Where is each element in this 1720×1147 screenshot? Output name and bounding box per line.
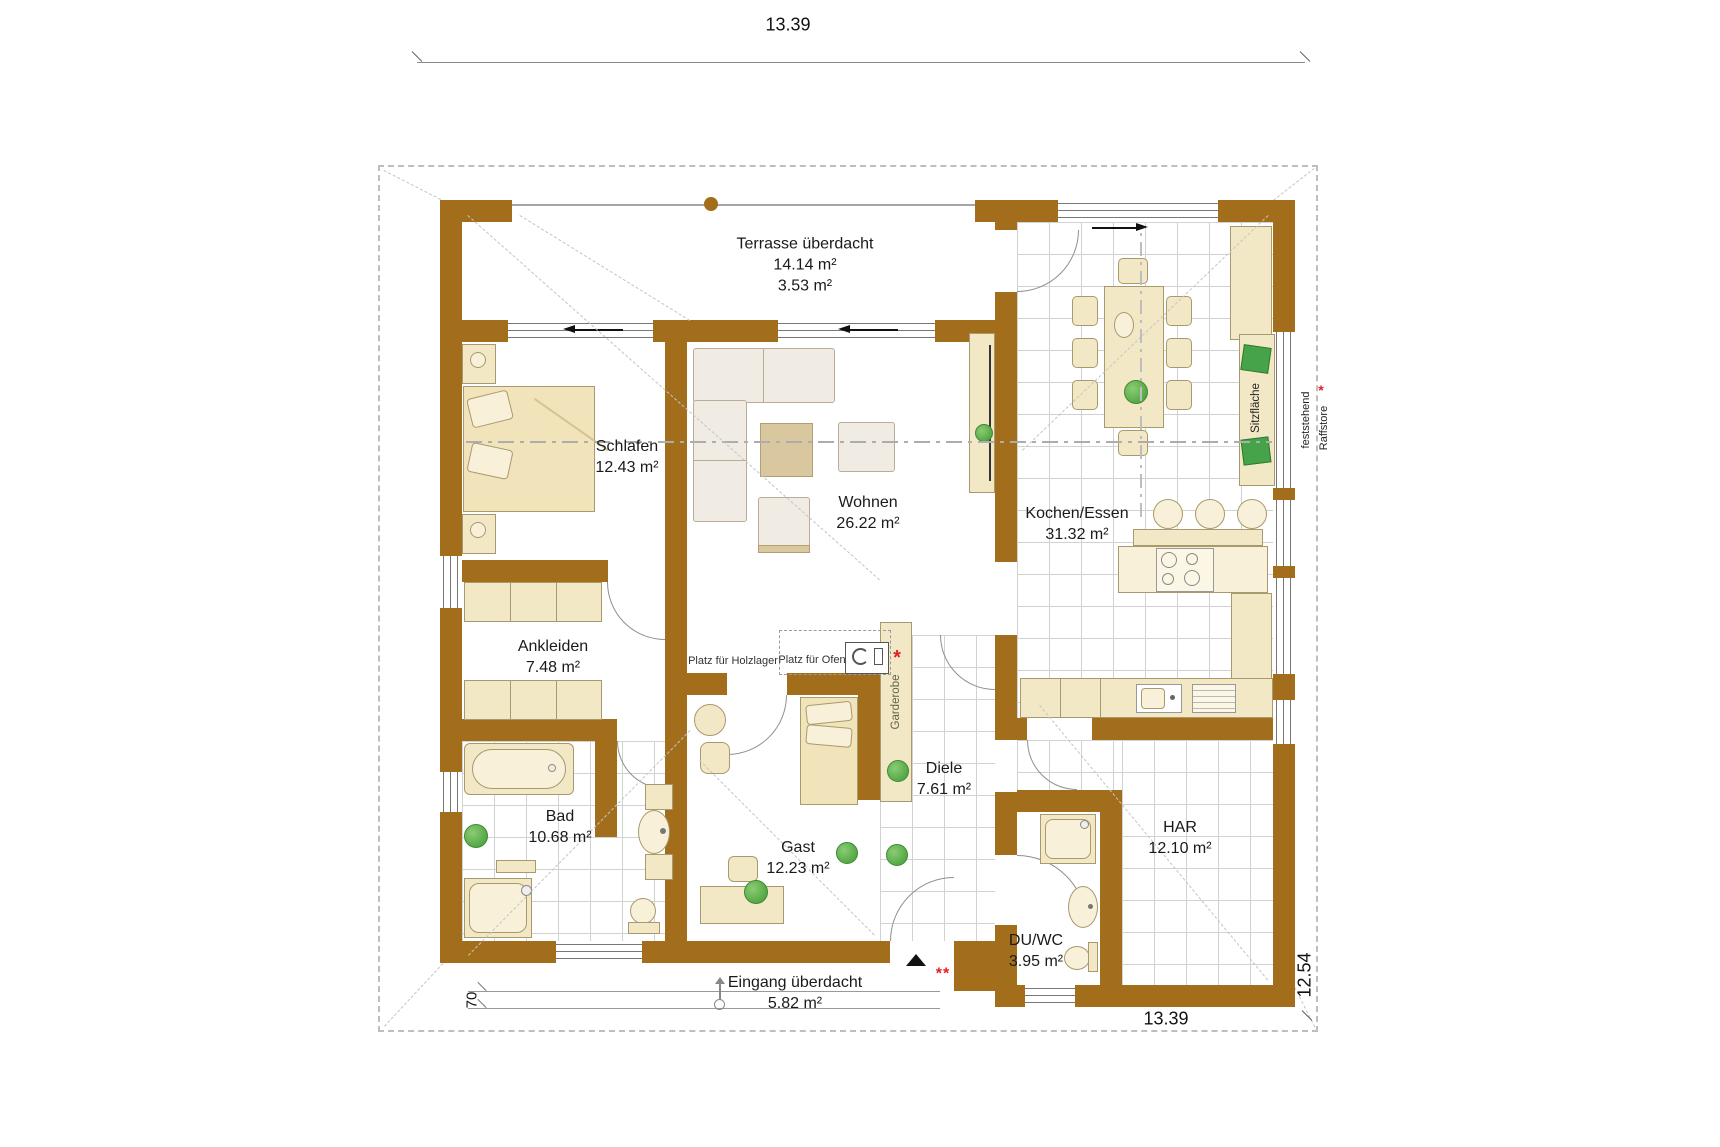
room-name: DU/WC: [1009, 930, 1063, 951]
room-area: 26.22 m²: [836, 513, 899, 534]
room-area: 3.95 m²: [1009, 951, 1063, 972]
room-label-wohnen: Wohnen 26.22 m²: [836, 492, 899, 534]
wall-kitchen-south: [1017, 718, 1027, 740]
bar-stool: [1237, 499, 1267, 529]
dining-chair: [1166, 338, 1192, 368]
room-label-schlafen: Schlafen 12.43 m²: [595, 436, 658, 478]
counter-divider: [1100, 678, 1101, 718]
door-kitchen: [1027, 740, 1077, 790]
dishwasher: [1192, 684, 1236, 713]
lounge-chair-base: [758, 545, 810, 553]
plant: [1124, 380, 1148, 404]
sofa-top: [693, 348, 835, 403]
armchair: [838, 422, 895, 472]
room-area: 7.61 m²: [917, 779, 971, 800]
room-name: Schlafen: [595, 436, 658, 457]
window-right-1: [1273, 500, 1295, 566]
door-terrace-kitchen: [1017, 230, 1079, 292]
shelf-cabinet: [969, 333, 995, 493]
room-name: Wohnen: [836, 492, 899, 513]
room-name: Gast: [766, 837, 829, 858]
slide-arrow-line: [1092, 227, 1136, 229]
dining-table: [1104, 286, 1164, 428]
bar-stool: [1195, 499, 1225, 529]
room-label-terrasse: Terrasse überdacht 14.14 m² 3.53 m²: [737, 233, 874, 296]
burner: [1161, 552, 1177, 568]
island-bartop: [1133, 529, 1263, 546]
marker-double-asterisk: **: [936, 963, 950, 984]
faucet: [660, 828, 666, 834]
dining-chair: [1072, 380, 1098, 410]
wall-duwc-east: [1100, 812, 1122, 1007]
room-label-diele: Diele 7.61 m²: [917, 758, 971, 800]
room-name: Ankleiden: [518, 636, 588, 657]
wall-bottom-left: [440, 941, 556, 963]
wall-schlafen-divider: [665, 342, 687, 582]
counter-divider: [1060, 678, 1061, 718]
lamp: [470, 522, 486, 538]
dining-chair: [1118, 258, 1148, 284]
kitchen-center-line: [1140, 232, 1142, 517]
slide-arrow-right-icon: [1136, 223, 1148, 231]
dining-chair: [1118, 430, 1148, 456]
window-terrace-wohnen: [778, 320, 935, 342]
wall-topleft-stub: [440, 200, 512, 222]
slide-arrow-left-icon: [838, 325, 850, 333]
vanity-counter: [645, 784, 673, 810]
room-area: 12.23 m²: [766, 858, 829, 879]
wardrobe-divider: [510, 680, 511, 720]
annotation-ofen: Platz für Ofen: [778, 654, 845, 666]
shelf-line: [989, 345, 991, 481]
room-label-ankleiden: Ankleiden 7.48 m²: [518, 636, 588, 678]
entrance-canopy-line: [468, 991, 940, 992]
plant: [464, 824, 488, 848]
wall-bottom-left: [642, 941, 890, 963]
floor-plan: 13.39 12.54 13.39 70 Terrasse überdacht …: [0, 0, 1720, 1147]
wall-duwc-north: [1017, 790, 1122, 812]
annotation-feststehend: feststehend: [1300, 392, 1312, 449]
wall-bad-east: [665, 582, 687, 941]
entrance-canopy-line: [468, 1008, 940, 1009]
plant: [887, 760, 909, 782]
door-bad: [617, 741, 665, 789]
window-right-kitchen: [1273, 578, 1295, 674]
plant: [886, 844, 908, 866]
har-floor: [1122, 740, 1273, 985]
room-area: 10.68 m²: [528, 827, 591, 848]
room-label-har: HAR 12.10 m²: [1148, 817, 1211, 859]
room-name: Bad: [528, 806, 591, 827]
room-label-eingang: Eingang überdacht 5.82 m²: [728, 972, 862, 1014]
room-label-duwc: DU/WC 3.95 m²: [1009, 930, 1063, 972]
room-name: Diele: [917, 758, 971, 779]
coffee-table: [760, 423, 813, 477]
marker-asterisk-ofen: *: [893, 645, 901, 671]
door-gast: [727, 695, 787, 755]
dining-chair: [1072, 338, 1098, 368]
slide-arrow-left-icon: [563, 325, 575, 333]
wardrobe-divider: [510, 582, 511, 622]
sofa-cushion-line: [694, 460, 746, 461]
wall-k-west-lower: [995, 792, 1017, 855]
armchair: [700, 742, 730, 774]
wall-ankleiden-north: [462, 560, 608, 582]
window-seat-bay: [1273, 332, 1295, 488]
wall-gast-north: [687, 673, 727, 695]
wall-ankleiden-south: [440, 719, 595, 741]
drain: [548, 764, 556, 772]
plant: [744, 880, 768, 904]
annotation-holzlager: Platz für Holzlager: [688, 655, 778, 667]
shower-head: [1080, 820, 1089, 829]
room-area: 5.82 m²: [728, 993, 862, 1014]
window-bad: [440, 772, 462, 812]
sofa-left: [693, 400, 747, 522]
desk: [700, 886, 784, 924]
wardrobe-row: [464, 582, 602, 622]
dim-tick: [412, 51, 423, 62]
slide-arrow-line: [850, 329, 898, 331]
dimension-right-height: 12.54: [1295, 952, 1316, 997]
room-name: Kochen/Essen: [1025, 503, 1128, 524]
faucet: [1170, 695, 1175, 700]
room-area2: 3.53 m²: [737, 276, 874, 297]
faucet: [1088, 904, 1093, 909]
door-schlafen-ankleiden: [607, 582, 665, 640]
plant: [975, 424, 993, 442]
toilet-bowl: [1064, 946, 1090, 970]
side-table: [694, 704, 726, 736]
annotation-raffstore: Raffstore: [1318, 406, 1330, 450]
window-right-har: [1273, 700, 1295, 744]
wall-kitchen-west: [995, 292, 1017, 562]
room-name: HAR: [1148, 817, 1211, 838]
annotation-sitzflaeche: Sitzfläche: [1250, 383, 1262, 433]
room-area: 7.48 m²: [518, 657, 588, 678]
desk-chair: [728, 856, 758, 882]
marker-asterisk-raffstore: *: [1318, 381, 1323, 399]
burner: [1184, 570, 1200, 586]
bar-stool: [1153, 499, 1183, 529]
wall-kitchen-west: [995, 635, 1017, 740]
door-entrance: [890, 877, 954, 941]
terrace-post: [704, 197, 718, 211]
room-label-bad: Bad 10.68 m²: [528, 806, 591, 848]
dimension-top-width: 13.39: [765, 15, 810, 36]
dimension-entrance-depth: 70: [464, 992, 481, 1009]
dimension-bottom-width: 13.39: [1143, 1009, 1188, 1030]
window-terrace-schlafen: [508, 320, 653, 342]
room-label-kochen: Kochen/Essen 31.32 m²: [1025, 503, 1128, 545]
ofen-icon-ring: [852, 648, 869, 665]
dining-chair: [1166, 380, 1192, 410]
window-duwc-south: [1025, 985, 1075, 1007]
sink-basin: [1141, 688, 1165, 709]
burner: [1162, 573, 1174, 585]
seat-cushion: [1240, 344, 1271, 374]
vanity-counter: [645, 854, 673, 880]
lamp: [470, 352, 486, 368]
room-name: Terrasse überdacht: [737, 233, 874, 254]
wall-bad-partition: [595, 719, 617, 837]
bench: [496, 860, 536, 873]
plant: [836, 842, 858, 864]
entrance-step-icon: [906, 954, 926, 966]
dim-line-top: [417, 62, 1305, 63]
wardrobe-divider: [556, 680, 557, 720]
pillow: [805, 724, 853, 748]
ofen-icon-bar: [874, 648, 883, 665]
window-kitchen-top: [1058, 200, 1218, 222]
dim-tick: [1300, 51, 1311, 62]
toilet-tank: [1088, 942, 1098, 972]
door-wohnen-diele: [940, 635, 995, 690]
wall-entry-block: [954, 941, 995, 991]
sofa-cushion-line: [763, 349, 764, 402]
room-area: 12.10 m²: [1148, 838, 1211, 859]
toilet-tank: [628, 922, 660, 934]
burner: [1186, 553, 1198, 565]
window-ankleiden: [440, 556, 462, 608]
room-name: Eingang überdacht: [728, 972, 862, 993]
north-marker-circle-icon: [714, 999, 725, 1010]
north-marker-arrow-icon: [715, 977, 725, 984]
wall-kitchen-south: [1092, 718, 1295, 740]
wardrobe-divider: [556, 582, 557, 622]
ridge-line: [466, 441, 1272, 443]
window-bottom-bad: [556, 941, 642, 963]
island-leg-counter: [1231, 593, 1272, 679]
room-label-gast: Gast 12.23 m²: [766, 837, 829, 879]
tall-cabinet: [1230, 226, 1272, 340]
wardrobe-row: [464, 680, 602, 720]
terrace-edge: [512, 204, 995, 206]
wall-gast-east: [858, 673, 880, 800]
room-area: 12.43 m²: [595, 457, 658, 478]
room-area: 14.14 m²: [737, 254, 874, 275]
toilet-bowl: [630, 898, 656, 924]
plate: [1114, 312, 1134, 338]
washbasin: [1068, 886, 1098, 928]
annotation-garderobe: Garderobe: [890, 675, 902, 730]
north-marker-stem: [719, 983, 721, 1000]
wall-kitchen-west: [995, 222, 1017, 230]
room-area: 31.32 m²: [1025, 524, 1128, 545]
dining-chair: [1072, 296, 1098, 326]
